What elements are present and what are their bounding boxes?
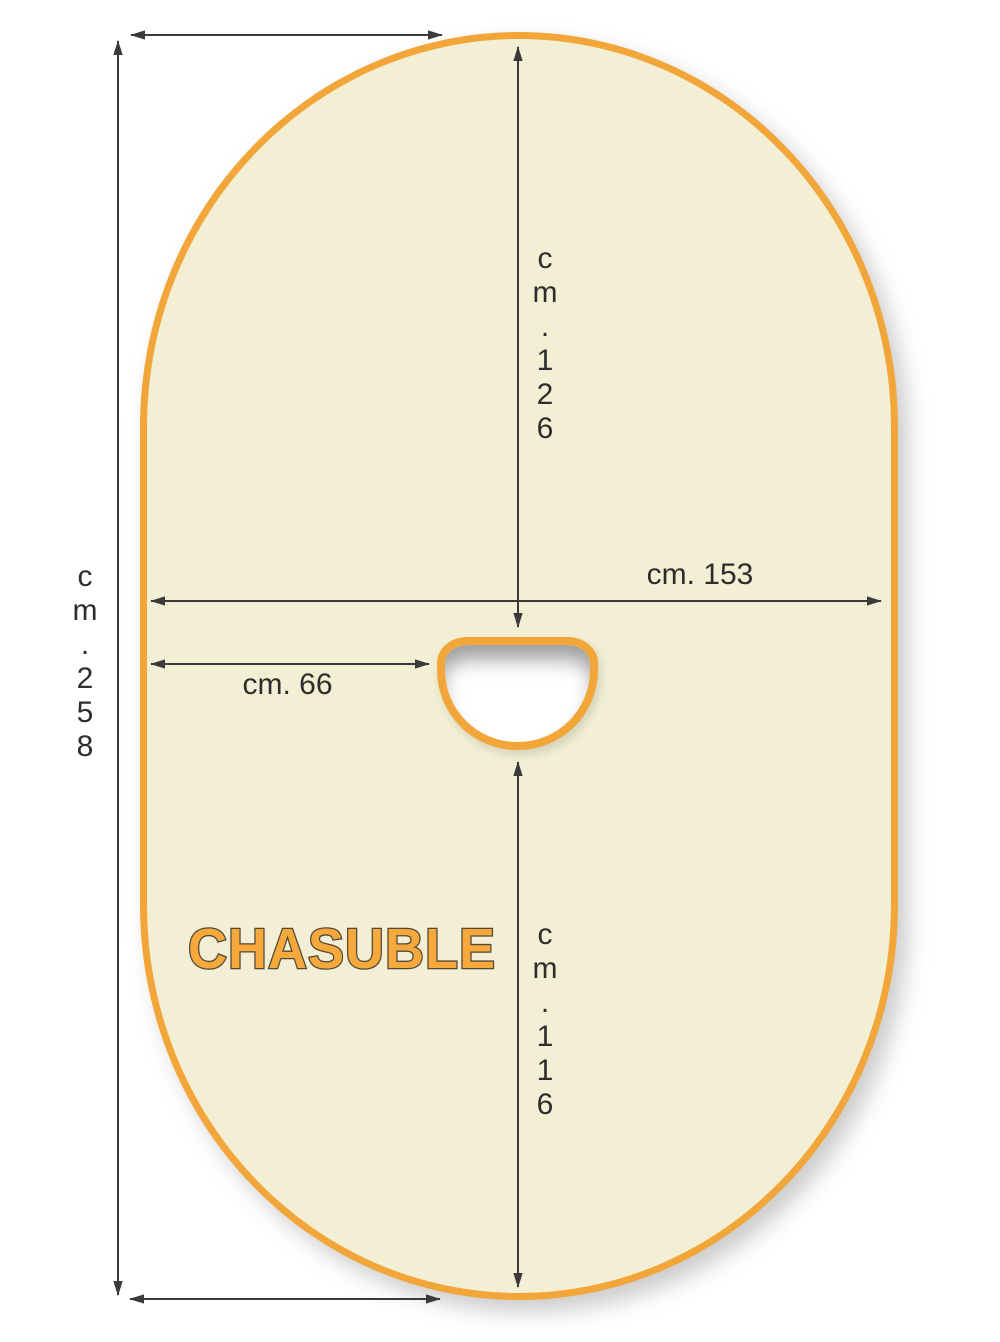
dim-label-lower-height: c m . 1 1 6 [517,918,573,1122]
garment-title: CHASUBLE [188,916,476,981]
dim-label-upper-height: c m . 1 2 6 [517,242,573,446]
chasuble-pattern-diagram: c m . 2 5 8 c m . 1 2 6 cm. 153 cm. 66 c… [0,0,1000,1342]
dim-label-total-height: c m . 2 5 8 [57,560,113,764]
dim-label-width: cm. 153 [620,558,780,592]
dim-label-neck-offset: cm. 66 [210,668,365,702]
